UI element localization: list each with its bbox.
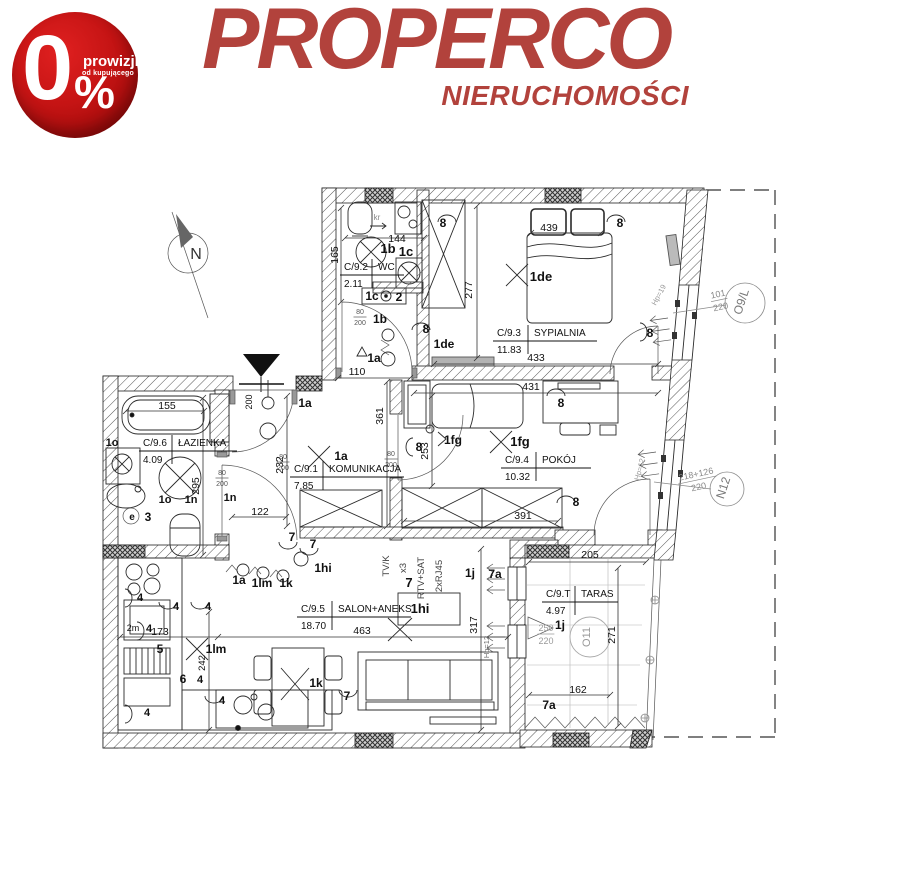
bathroom-fixtures (106, 394, 229, 556)
plan-label: O9/L (731, 287, 752, 316)
plan-label: 4 (144, 707, 151, 719)
plan-label: 242 (197, 655, 208, 671)
plan-label: 295 (190, 477, 202, 495)
plan-label: 7 (344, 689, 351, 703)
plan-label: 7 (310, 537, 317, 551)
plan-label: 1de (530, 269, 552, 284)
plan-label: 7a (488, 567, 502, 581)
plan-label: 1hi (411, 601, 430, 616)
plan-label: 1hi (314, 561, 331, 575)
plan-label: TV/K (381, 555, 392, 577)
fraction-top: 101 (710, 288, 727, 301)
fraction-label: 250220 (538, 623, 555, 646)
plan-label: 173 (151, 626, 169, 638)
fraction-top: 80 (218, 470, 226, 477)
room-area: 2.11 (344, 279, 363, 290)
plan-label: 2xRJ45 (434, 560, 445, 592)
room-label-taras: C/9.TTARAS4.97 (542, 586, 618, 617)
fraction-label: 101220 (709, 287, 730, 313)
plan-label: 1c (399, 244, 413, 259)
room-code: C/9.3 (497, 328, 521, 339)
plan-label: x3 (398, 563, 409, 573)
floor-plan: C/9.2WC2.11C/9.3SYPIALNIA11.83C/9.4POKÓJ… (0, 0, 910, 886)
plan-label: 1a (334, 449, 348, 463)
plan-label: 8 (573, 495, 580, 509)
room-area: 18.70 (301, 621, 326, 632)
plan-label: 205 (581, 549, 599, 561)
plan-label: 4 (173, 601, 180, 613)
plan-label: 122 (251, 506, 269, 518)
plan-label: N (190, 246, 202, 263)
plan-label: 433 (527, 352, 545, 364)
plan-label: 165 (329, 246, 341, 264)
room-label-pok-j: C/9.4POKÓJ10.32 (501, 452, 591, 483)
plan-label: 4 (197, 674, 204, 686)
plan-label: 4 (146, 623, 153, 635)
fraction-bottom: 200 (385, 462, 397, 469)
plan-label: kr (374, 213, 381, 222)
room-name: ŁAZIENKA (178, 438, 227, 449)
plan-label: 4 (219, 695, 226, 707)
plan-label: 391 (514, 510, 532, 522)
plan-label: 1lm (252, 576, 273, 590)
plan-label: 1o (159, 494, 172, 506)
plan-label: 8 (423, 322, 430, 336)
room-area: 7.85 (294, 481, 314, 492)
plan-label: 1n (185, 494, 198, 506)
plan-label: 439 (540, 222, 558, 234)
plan-label: 2m (127, 623, 140, 633)
plan-label: 1n (224, 492, 237, 504)
room-area: 10.32 (505, 472, 530, 483)
terrace (520, 558, 661, 748)
plan-label: 1a (232, 573, 246, 587)
plan-label: 317 (468, 616, 480, 634)
plan-label: 7 (405, 575, 412, 590)
room-name: SALON+ANEKS (338, 604, 412, 615)
plan-label: 8 (440, 216, 447, 230)
plan-label: 162 (569, 684, 587, 696)
plan-label: e (129, 512, 135, 523)
plan-label: 1fg (444, 433, 462, 447)
entrance-marker-icon (239, 354, 284, 392)
fraction-label: 80200 (384, 451, 397, 469)
plan-label: 1j (555, 618, 565, 632)
room-label-sypialnia: C/9.3SYPIALNIA11.83 (493, 325, 597, 356)
plan-label: 277 (463, 281, 475, 299)
dim-line (615, 565, 621, 729)
plan-label: N12 (713, 475, 733, 501)
plan-label: 1b (380, 241, 395, 256)
plan-label: 431 (522, 381, 540, 393)
plan-label: 3 (145, 510, 152, 524)
plan-label: Hp=12 (482, 636, 491, 658)
facade-windows (638, 283, 765, 530)
plan-label: 1k (309, 676, 323, 690)
plan-label: 361 (374, 407, 386, 425)
plan-label: 271 (606, 626, 618, 644)
plan-label: 8 (558, 396, 565, 410)
fraction-top: 80 (356, 309, 364, 316)
plan-label: 1k (279, 576, 293, 590)
room-code: C/9.5 (301, 604, 325, 615)
plan-label: 200 (244, 394, 254, 409)
plan-label: 1o (106, 437, 119, 449)
plan-label: 4 (137, 592, 144, 604)
plan-label: 8 (617, 216, 624, 230)
fraction-bottom: 220 (538, 636, 553, 646)
room-area: 11.83 (497, 345, 522, 356)
plan-label: 1lm (206, 642, 227, 656)
fraction-bottom: 200 (277, 465, 289, 472)
fraction-top: 250 (538, 623, 553, 633)
room-name: POKÓJ (542, 453, 576, 466)
fraction-label: 80200 (353, 309, 366, 327)
plan-label: 1de (434, 337, 455, 351)
room-code: C/9.1 (294, 464, 318, 475)
fraction-top: 80 (279, 454, 287, 461)
plan-label: 1fg (510, 434, 530, 449)
room-code: C/9.6 (143, 438, 167, 449)
room-area: 4.97 (546, 606, 566, 617)
plan-label: O11 (581, 627, 593, 647)
fraction-bottom: 220 (690, 480, 707, 493)
room-name: WC (378, 262, 395, 273)
property-boundary-line (650, 190, 775, 737)
room-name: TARAS (581, 589, 614, 600)
room-code: C/9.4 (505, 455, 529, 466)
plan-label: 7a (542, 698, 556, 712)
room-name: SYPIALNIA (534, 328, 586, 339)
plan-label: 4 (205, 601, 212, 613)
room-area: 4.09 (143, 455, 163, 466)
fraction-top: 80 (387, 451, 395, 458)
plan-label: 1j (465, 566, 475, 580)
plan-label: 2 (396, 290, 403, 304)
dim-line (401, 518, 561, 524)
room-code: C/9.T (546, 589, 570, 600)
plan-label: 1c (365, 289, 379, 303)
plan-label: 6 (180, 672, 187, 686)
plan-label: 110 (349, 366, 366, 378)
dim-line (117, 634, 511, 640)
plan-label: 155 (158, 400, 176, 412)
plan-label: 1a (298, 396, 312, 410)
plan-label: RTV+SAT (416, 557, 427, 599)
plan-label: 5 (157, 642, 164, 656)
page: 0 % prowizji od kupującego PROPERCO NIER… (0, 0, 910, 886)
plan-label: 8 (416, 440, 423, 454)
plan-label: 7 (289, 530, 296, 544)
plan-label: Hp=19 (650, 283, 668, 307)
room-code: C/9.2 (344, 262, 368, 273)
plan-label: 1a (367, 351, 381, 365)
fraction-bottom: 200 (216, 481, 228, 488)
plan-label: 8 (647, 326, 654, 340)
plan-label: 1b (373, 312, 387, 326)
fraction-bottom: 200 (354, 320, 366, 327)
plan-label: 463 (353, 625, 371, 637)
compass-north-icon (168, 212, 208, 318)
